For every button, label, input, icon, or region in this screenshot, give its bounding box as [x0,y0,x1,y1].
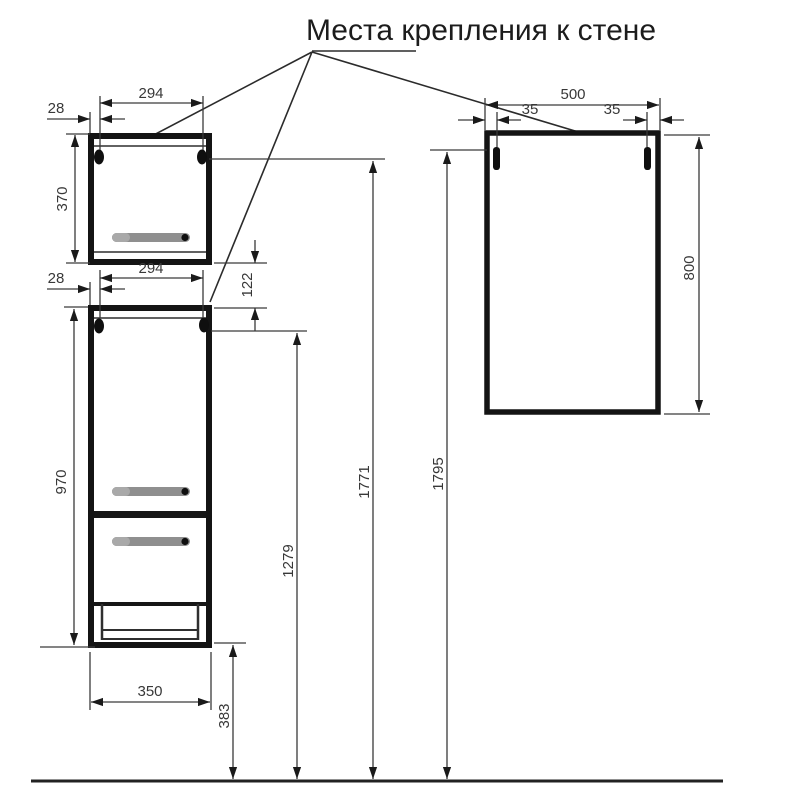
dim-label-upper-edge-offset: 28 [48,100,65,117]
dim-label-upper-height: 370 [54,186,71,211]
dim-label-mirror-width: 500 [560,86,585,103]
dim-label-lower-edge-offset: 28 [48,270,65,287]
technical-drawing-page: Места крепления к стене [0,0,800,800]
dim-label-upper-mount-height: 1771 [356,465,373,498]
dim-lower-28: 28 [47,270,125,305]
dim-label-cabinet-gap: 122 [239,272,256,297]
upper-cabinet [91,136,209,262]
mount-point-icon [94,319,104,334]
mount-point-icon [197,150,207,165]
mount-point-icon [94,150,104,165]
upper-door-handle [112,233,190,242]
dim-label-mirror-height: 800 [681,255,698,280]
dim-label-lower-height: 970 [53,469,70,494]
dim-lower-970: 970 [40,307,95,647]
door-drawer-divider [94,511,206,518]
dim-label-floor-clearance: 383 [216,703,233,728]
dim-label-lower-width: 350 [137,683,162,700]
dim-gap-122: 122 [214,240,267,331]
mount-slot-icon [644,147,651,170]
dim-label-mirror-right-offset: 35 [604,101,621,118]
dim-upper-370: 370 [54,134,90,263]
mount-slot-icon [493,147,500,170]
lower-cabinet [91,308,209,645]
dim-label-lower-mount-height: 1279 [280,544,297,577]
page-title: Места крепления к стене [306,14,656,47]
dim-mirror-800: 800 [664,135,710,414]
lower-door-handle [112,487,190,496]
upper-cabinet-body [91,136,209,262]
dim-label-mirror-left-offset: 35 [522,101,539,118]
dim-label-upper-mount-spacing: 294 [138,85,163,102]
dim-mirror-500: 500 [485,86,660,130]
leader-to-lower-cabinet-mount [210,52,312,302]
drawer-handle [112,537,190,546]
mirror-panel [487,133,658,412]
furniture-mounting-diagram: Места крепления к стене [0,0,800,800]
dim-upper-28: 28 [47,100,125,133]
dim-label-lower-mount-spacing: 294 [138,260,163,277]
dim-floor-383: 383 [214,643,246,779]
mirror-panel-body [487,133,658,412]
lower-cabinet-body [91,308,209,645]
dim-lower-350: 350 [90,652,211,710]
dim-mirror-mount-1795: 1795 [430,150,487,779]
mount-point-icon [199,318,209,333]
dim-label-mirror-mount-height: 1795 [430,457,447,490]
